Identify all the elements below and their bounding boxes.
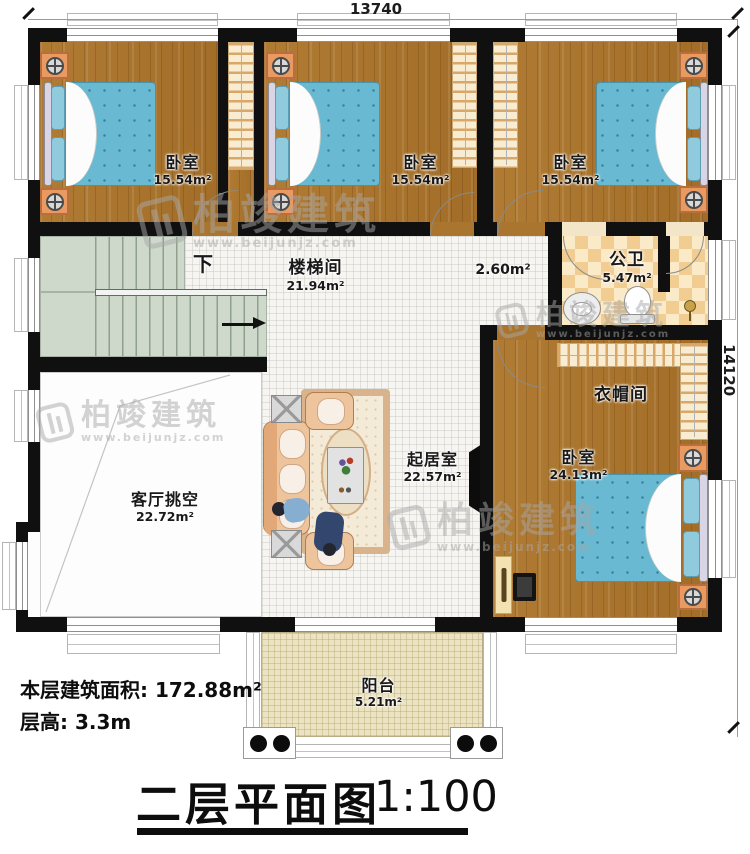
dimension-width: 13740	[331, 0, 421, 18]
balcony-sliding-door	[295, 617, 435, 632]
hallway-area-label: 2.60m²	[455, 262, 551, 279]
window	[708, 240, 722, 320]
room-name: 卧室	[130, 153, 235, 172]
room-name: 客厅挑空	[110, 490, 220, 509]
headboard	[700, 82, 708, 186]
window-sill	[2, 542, 16, 610]
room-area: 24.13m²	[526, 467, 631, 482]
window	[708, 480, 722, 578]
room-label-living-room: 起居室 22.57m²	[380, 450, 485, 484]
nightstand	[40, 52, 69, 79]
window	[297, 28, 450, 42]
floor-height-note: 层高: 3.3m	[20, 706, 131, 735]
pillow	[687, 137, 702, 181]
nightstand	[40, 188, 69, 215]
lamp-icon	[685, 191, 703, 209]
lamp-icon	[46, 57, 64, 75]
floor-plan-canvas: 柏竣建筑 www.beijunjz.com 柏竣建筑 www.beijunjz.…	[0, 0, 750, 854]
wall-stair-bottom	[28, 357, 267, 372]
window-sill	[722, 240, 736, 320]
room-area: 15.54m²	[368, 172, 473, 187]
person-head	[323, 543, 336, 556]
window	[28, 85, 40, 180]
tv-cabinet	[513, 573, 536, 601]
lamp-icon	[685, 57, 703, 75]
nightstand	[266, 188, 295, 215]
window-sill	[67, 634, 220, 654]
room-label-master-bedroom: 卧室 24.13m²	[526, 448, 631, 482]
wall-bathroom-left	[548, 236, 562, 340]
room-label-balcony: 阳台 5.21m²	[326, 676, 431, 710]
window	[525, 28, 677, 42]
column-icon	[480, 735, 497, 752]
room-name: 卧室	[518, 153, 623, 172]
window	[16, 542, 28, 610]
balcony-column-box-left	[243, 727, 296, 759]
cloakroom-rack-top	[557, 343, 683, 367]
lamp-icon	[684, 449, 702, 467]
void-area-extension	[28, 532, 40, 617]
wardrobe-rack	[493, 42, 518, 168]
sofa-cushion	[279, 429, 306, 459]
window-sill	[14, 390, 28, 442]
door-opening	[666, 222, 704, 236]
toilet-icon	[624, 286, 651, 317]
bed-master	[575, 474, 708, 582]
room-area: 21.94m²	[263, 278, 368, 293]
room-name: 卧室	[368, 153, 473, 172]
lamp-icon	[272, 193, 290, 211]
room-name: 公卫	[577, 250, 677, 270]
window	[67, 28, 218, 42]
room-label-bedroom-top-middle: 卧室 15.54m²	[368, 153, 473, 187]
room-label-bathroom: 公卫 5.47m²	[577, 250, 677, 285]
title-underline	[137, 828, 468, 835]
window-sill	[14, 258, 28, 332]
lamp-icon	[46, 193, 64, 211]
wardrobe-rack	[452, 42, 477, 168]
pillow	[683, 478, 700, 523]
stair-direction-arrow-head	[253, 317, 266, 329]
column-icon	[273, 735, 290, 752]
room-label-bedroom-top-left: 卧室 15.54m²	[130, 153, 235, 187]
pillow	[275, 137, 290, 181]
dimension-tick	[22, 7, 35, 20]
wall-closet-right	[254, 42, 264, 222]
side-table	[271, 530, 302, 558]
stair-handrail	[95, 289, 267, 296]
pillow	[275, 86, 290, 130]
room-name: 起居室	[380, 450, 485, 469]
window	[28, 390, 40, 442]
stair-direction-arrow-line	[222, 323, 254, 326]
dimension-tick	[731, 7, 744, 20]
room-area: 22.72m²	[110, 509, 220, 524]
armchair-cushion	[317, 398, 345, 425]
room-area: 5.21m²	[326, 695, 431, 709]
headboard	[699, 474, 708, 582]
room-label-bedroom-top-right: 卧室 15.54m²	[518, 153, 623, 187]
room-area: 22.57m²	[380, 469, 485, 484]
coffee-table	[327, 447, 364, 504]
pillow	[51, 137, 66, 181]
room-name: 阳台	[326, 676, 431, 695]
person-on-armchair	[315, 512, 345, 556]
pillow	[51, 86, 66, 130]
window	[708, 85, 722, 180]
toilet-tank	[620, 314, 655, 324]
drawing-scale: 1:100	[374, 772, 498, 822]
pillow	[683, 531, 700, 576]
nightstand	[678, 444, 708, 472]
room-name: 楼梯间	[263, 258, 368, 278]
sink-icon	[563, 292, 601, 325]
bed-top-middle	[268, 82, 380, 186]
room-label-stairwell: 楼梯间 21.94m²	[263, 258, 368, 293]
room-name: 卧室	[526, 448, 631, 467]
room-label-void: 客厅挑空 22.72m²	[110, 490, 220, 524]
nightstand	[678, 584, 708, 610]
balcony-column-box-right	[450, 727, 503, 759]
room-area: 15.54m²	[130, 172, 235, 187]
cloakroom-rack-right	[680, 343, 708, 440]
wall-between-bedrooms	[477, 42, 493, 222]
wardrobe-rack	[228, 42, 254, 170]
armchair-top	[305, 392, 354, 430]
nightstand	[679, 52, 708, 79]
lamp-icon	[684, 588, 702, 606]
room-name: 衣帽间	[566, 385, 676, 405]
shower-head-icon	[684, 300, 696, 312]
sofa-cushion	[279, 464, 306, 494]
floor-area-note: 本层建筑面积: 172.88m²	[20, 674, 262, 703]
dimension-depth: 14120	[720, 330, 738, 410]
window-sill	[525, 634, 677, 654]
room-area: 5.47m²	[577, 270, 677, 285]
person-on-sofa	[272, 496, 312, 526]
side-table	[271, 395, 302, 423]
window	[67, 617, 220, 632]
window	[28, 258, 40, 332]
room-label-cloakroom: 衣帽间	[566, 385, 676, 405]
dimension-line-top	[28, 19, 738, 20]
nightstand	[679, 186, 708, 213]
door-opening	[562, 222, 606, 236]
window-sill	[722, 480, 736, 578]
window	[525, 617, 677, 632]
page-title: 二层平面图	[136, 768, 381, 833]
window-sill	[722, 85, 736, 180]
pillow	[687, 86, 702, 130]
person-body	[282, 496, 311, 523]
stair-treads-upper	[95, 237, 184, 291]
window-sill	[14, 85, 28, 180]
lamp-icon	[272, 57, 290, 75]
wall-bedroom-row	[28, 222, 722, 236]
room-area: 15.54m²	[518, 172, 623, 187]
column-icon	[250, 735, 267, 752]
nightstand	[266, 52, 295, 79]
bedroom-cabinet	[495, 556, 512, 614]
door-opening	[497, 325, 545, 340]
column-icon	[457, 735, 474, 752]
stair-direction-label: 下	[188, 252, 218, 276]
